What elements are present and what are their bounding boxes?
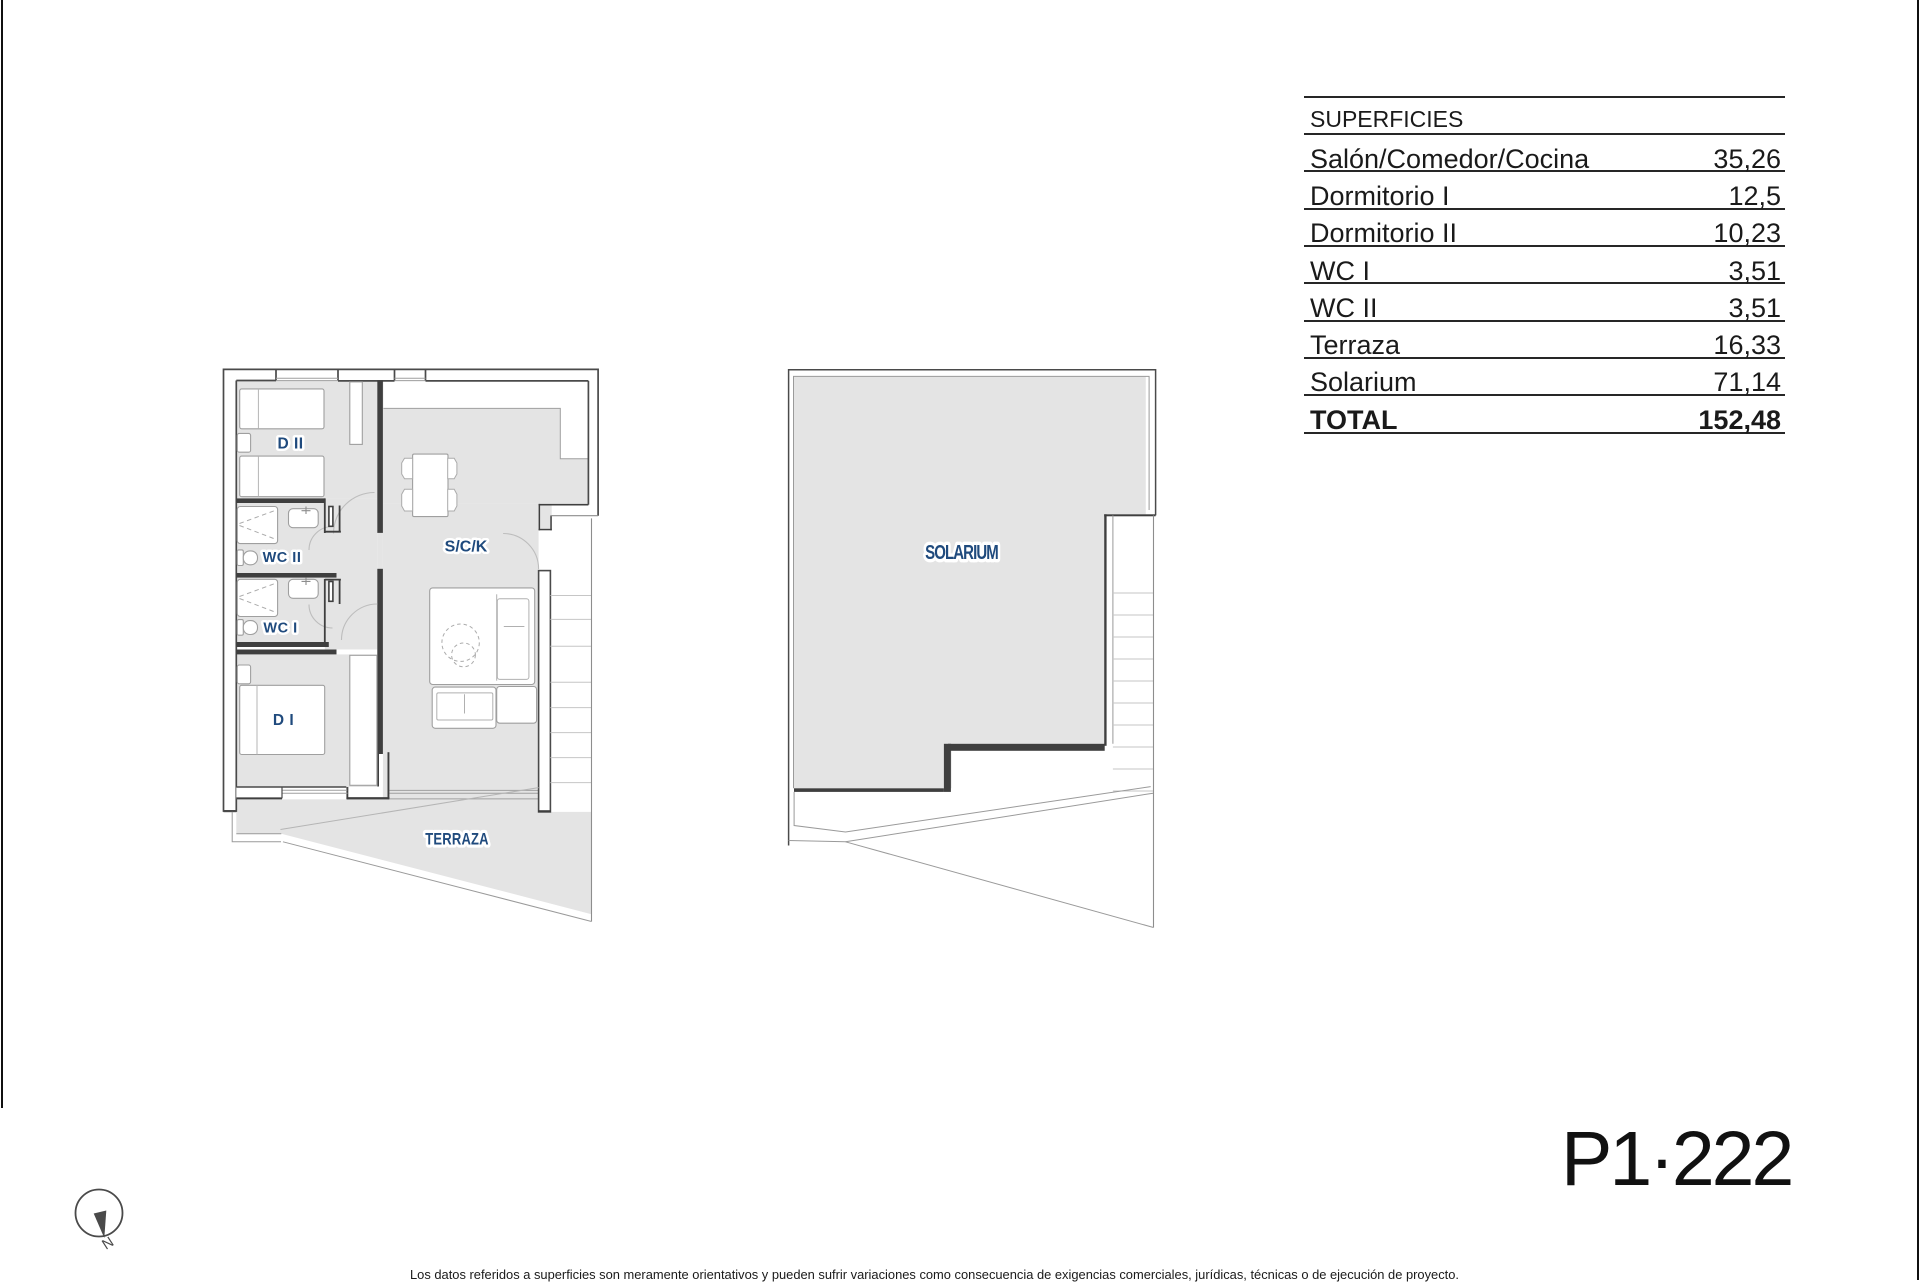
svg-text:S/C/K: S/C/K xyxy=(445,539,488,556)
svg-text:TERRAZA: TERRAZA xyxy=(425,831,489,849)
svg-text:N: N xyxy=(99,1234,117,1253)
svg-text:WC II: WC II xyxy=(263,550,302,566)
svg-text:SOLARIUM: SOLARIUM xyxy=(925,541,998,564)
svg-text:WC I: WC I xyxy=(263,621,297,637)
svg-text:D II: D II xyxy=(277,436,303,453)
svg-text:D I: D I xyxy=(273,712,294,729)
